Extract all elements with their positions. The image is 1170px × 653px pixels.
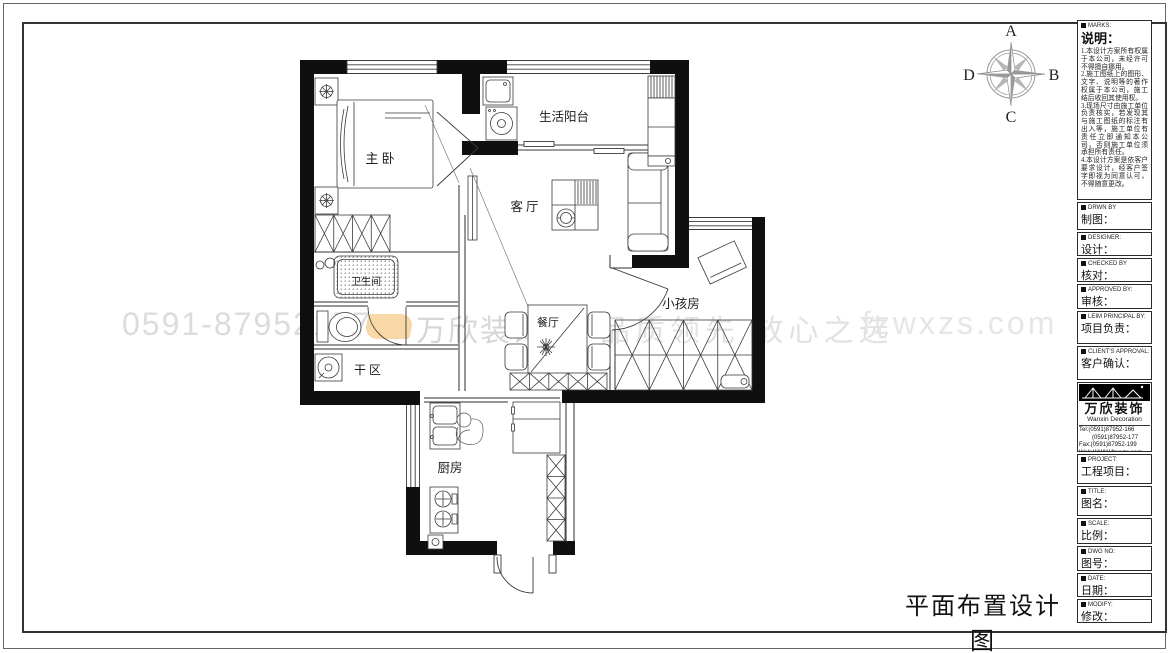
note-item: 3.现场尺寸由施工单位负责核实，若发现其与施工图纸的标注有出入等，施工单位有责任… bbox=[1081, 103, 1148, 158]
entry-doorframe-right bbox=[549, 555, 556, 573]
square-bullet-icon bbox=[1081, 261, 1086, 266]
dining-cabinet bbox=[510, 373, 607, 390]
note-item: 4.本设计方案是依客户要求设计，经客户签字即视为同意认可，不得随意更改。 bbox=[1081, 157, 1148, 188]
drawing-title: 平面布置设计图 bbox=[898, 586, 1068, 653]
square-bullet-icon bbox=[1081, 521, 1086, 526]
bed bbox=[315, 78, 459, 214]
room-label-master-bedroom: 主 卧 bbox=[365, 151, 394, 166]
square-bullet-icon bbox=[1081, 287, 1086, 292]
room-label-bathroom: 卫生间 bbox=[351, 275, 381, 288]
notes-caption: MARKS: bbox=[1081, 23, 1148, 30]
kitchen-tall-cabinet bbox=[547, 455, 565, 541]
square-bullet-icon bbox=[1081, 23, 1086, 28]
balcony-sink bbox=[483, 77, 513, 105]
room-label-life-balcony: 生活阳台 bbox=[539, 109, 589, 124]
field-designer: DESIGNER: 设计： bbox=[1077, 232, 1152, 256]
compass-label-south: C bbox=[1006, 109, 1017, 126]
square-bullet-icon bbox=[1081, 576, 1086, 581]
field-drawn-by: DRWN BY 制图： bbox=[1077, 202, 1152, 230]
square-bullet-icon bbox=[1081, 314, 1086, 319]
room-label-living-room: 客厅 bbox=[510, 199, 541, 214]
fridge bbox=[512, 402, 561, 453]
sofa bbox=[628, 153, 668, 251]
compass-rose: A B C D bbox=[963, 22, 1063, 126]
notes-title: 说明： bbox=[1081, 31, 1148, 46]
washing-machine bbox=[486, 107, 517, 140]
wash-basin bbox=[315, 354, 342, 381]
compass-label-east: B bbox=[1049, 67, 1060, 84]
field-client-approval: CLIENT'S APPROVAL: 客户确认： bbox=[1077, 346, 1152, 380]
field-approved-by: APPROVED BY: 审核： bbox=[1077, 284, 1152, 309]
drawing-title-text: 平面布置设计图 bbox=[898, 586, 1068, 653]
square-bullet-icon bbox=[1081, 235, 1086, 240]
compass-label-north: A bbox=[1005, 23, 1017, 40]
bathroom-door-icon bbox=[368, 307, 406, 345]
room-label-dining-room: 餐厅 bbox=[537, 315, 559, 329]
kitchen-sink bbox=[430, 403, 460, 449]
notes-box: MARKS: 说明： 1.本设计方案所有权属于本公司，未经许可不得擅自挪用。 2… bbox=[1077, 20, 1152, 200]
company-box: 万欣装饰 Wanxin Decoration Tel:(0591)87952-1… bbox=[1077, 382, 1152, 452]
room-label-kids-room: 小孩房 bbox=[662, 296, 700, 311]
field-project-principal: LEIM PRINCIPAL BY: 项目负责： bbox=[1077, 311, 1152, 344]
square-bullet-icon bbox=[1081, 349, 1086, 354]
kids-door-icon bbox=[612, 268, 668, 330]
balcony-cabinet bbox=[648, 76, 675, 166]
field-project: PROJECT: 工程项目： bbox=[1077, 454, 1152, 484]
square-bullet-icon bbox=[1081, 457, 1086, 462]
company-name-en: Wanxin Decoration bbox=[1079, 416, 1150, 426]
field-scale: SCALE: 比例： bbox=[1077, 518, 1152, 544]
kids-desk bbox=[698, 241, 747, 284]
title-block: MARKS: 说明： 1.本设计方案所有权属于本公司，未经许可不得擅自挪用。 2… bbox=[1077, 20, 1152, 625]
sliding-door-panel bbox=[524, 142, 554, 147]
stove bbox=[428, 487, 458, 549]
square-bullet-icon bbox=[1081, 205, 1086, 210]
field-dwg-no: DWG NO: 图号： bbox=[1077, 546, 1152, 571]
field-date: DATE: 日期： bbox=[1077, 573, 1152, 597]
company-contact: Tel:(0591)87952-166 (0591)87952-177 Fax:… bbox=[1079, 427, 1150, 452]
company-logo-graphic bbox=[1079, 384, 1150, 401]
note-item: 1.本设计方案所有权属于本公司，未经许可不得擅自挪用。 bbox=[1081, 48, 1148, 71]
dining-set bbox=[505, 305, 610, 375]
company-tel1: Tel:(0591)87952-166 bbox=[1079, 427, 1150, 435]
note-item: 2.施工图纸上的图形、文字、说明等的著作权属于本公司，施工结后收回其使用权。 bbox=[1081, 71, 1148, 102]
wardrobe bbox=[315, 215, 390, 252]
company-web: Web:WWW.fzwxzs.com bbox=[1079, 450, 1150, 453]
compass-label-west: D bbox=[963, 67, 975, 84]
notes-body: 1.本设计方案所有权属于本公司，未经许可不得擅自挪用。 2.施工图纸上的图形、文… bbox=[1081, 48, 1148, 188]
compass-star bbox=[977, 42, 1045, 106]
sliding-door-panel bbox=[594, 149, 624, 154]
field-title: TITLE: 图名： bbox=[1077, 486, 1152, 516]
square-bullet-icon bbox=[1081, 602, 1086, 607]
kids-bed bbox=[615, 320, 752, 390]
coffee-table bbox=[552, 180, 598, 230]
room-label-kitchen: 厨房 bbox=[437, 460, 462, 475]
square-bullet-icon bbox=[1081, 549, 1086, 554]
entry-door-icon bbox=[497, 557, 533, 593]
company-tel2: (0591)87952-177 bbox=[1079, 435, 1150, 443]
room-label-dry-area: 干区 bbox=[354, 363, 384, 377]
toilet bbox=[317, 311, 361, 342]
company-name: 万欣装饰 bbox=[1079, 401, 1150, 416]
field-checked-by: CHECKED BY 核对： bbox=[1077, 258, 1152, 282]
square-bullet-icon bbox=[1081, 489, 1086, 494]
company-fax: Fax:(0591)87952-199 bbox=[1079, 442, 1150, 450]
field-modify: MODIFY: 修改： bbox=[1077, 599, 1152, 623]
drawing-sheet: 0591-87952177 万欣装饰 品质领先 放心之选 fzwxzs.com bbox=[0, 0, 1170, 653]
